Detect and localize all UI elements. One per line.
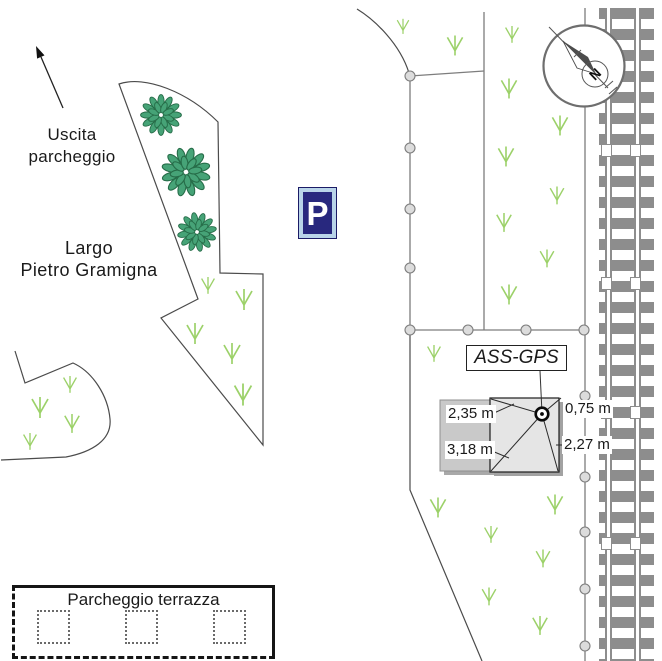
grass-icon	[236, 289, 252, 310]
north-compass-icon: N	[544, 26, 625, 107]
parking-sign-icon: P	[298, 187, 337, 239]
grass-icon	[498, 147, 513, 167]
exit-label-line2: parcheggio	[11, 146, 133, 168]
grass-icon	[64, 376, 77, 393]
measurement-ne: 0,75 m	[563, 400, 613, 418]
square-name-line2: Pietro Gramigna	[6, 259, 172, 281]
measurement-se: 2,27 m	[562, 436, 612, 454]
road-curve	[357, 9, 409, 73]
terrace-parking-label: Parcheggio terrazza	[15, 590, 272, 610]
grass-icon	[550, 187, 564, 205]
station-label: ASS-GPS	[474, 347, 558, 369]
fence-post-icon	[405, 204, 415, 214]
parking-stall-icon	[125, 610, 158, 644]
grass-icon	[536, 550, 550, 568]
grass-icon	[397, 19, 409, 34]
square-name-line1: Largo	[6, 237, 172, 259]
terrace-parking-box: Parcheggio terrazza	[12, 585, 275, 659]
tree-icon	[141, 95, 182, 136]
grass-icon	[224, 343, 240, 364]
grass-icon	[32, 397, 48, 418]
grass-icon	[497, 213, 511, 232]
fence-post-icon	[580, 641, 590, 651]
grass-icon	[447, 36, 462, 56]
square-name-label: Largo Pietro Gramigna	[6, 237, 172, 281]
fence-post-icon	[405, 71, 415, 81]
lower-left-outline	[1, 351, 110, 460]
grass-icon	[428, 345, 441, 362]
site-map: N Uscita parcheggio Largo Pietro Gramign…	[0, 0, 662, 661]
fence-lines	[410, 8, 585, 661]
fence-post-icon	[405, 143, 415, 153]
grass-icon	[506, 26, 519, 43]
map-vector-layer: N	[0, 0, 662, 661]
exit-label: Uscita parcheggio	[11, 124, 133, 168]
grass-icon	[430, 498, 445, 518]
measurement-sw: 3,18 m	[445, 441, 495, 459]
tree-icon	[174, 209, 219, 254]
tree-icon	[156, 142, 215, 201]
grass-icon	[540, 250, 554, 268]
grass-field	[24, 19, 568, 635]
exit-arrow-icon	[36, 46, 63, 108]
gps-marker-dot	[540, 412, 544, 416]
grass-icon	[501, 285, 516, 305]
grass-icon	[482, 588, 496, 606]
fence-post-icon	[405, 325, 415, 335]
grass-icon	[235, 384, 252, 406]
fence-post-icon	[580, 472, 590, 482]
grass-icon	[202, 277, 215, 294]
fence-post-icon	[405, 263, 415, 273]
fence-post-icon	[580, 527, 590, 537]
grass-icon	[65, 414, 79, 433]
lower-parcel-outline	[410, 330, 482, 661]
grass-icon	[187, 323, 203, 344]
exit-label-line1: Uscita	[11, 124, 133, 146]
fence-post-icon	[580, 584, 590, 594]
station-label-box: ASS-GPS	[466, 345, 567, 371]
parking-sign-letter: P	[303, 192, 332, 234]
grass-icon	[501, 79, 516, 99]
grass-icon	[547, 495, 562, 515]
gps-building	[440, 371, 564, 476]
grass-icon	[24, 433, 37, 450]
fence-post-icon	[579, 325, 589, 335]
parking-stall-icon	[213, 610, 246, 644]
fence-post-icon	[521, 325, 531, 335]
parking-stall-icon	[37, 610, 70, 644]
grass-icon	[533, 616, 547, 635]
grass-icon	[485, 526, 498, 543]
measurement-nw: 2,35 m	[446, 405, 496, 423]
grass-icon	[552, 116, 567, 136]
fence-post-icon	[463, 325, 473, 335]
